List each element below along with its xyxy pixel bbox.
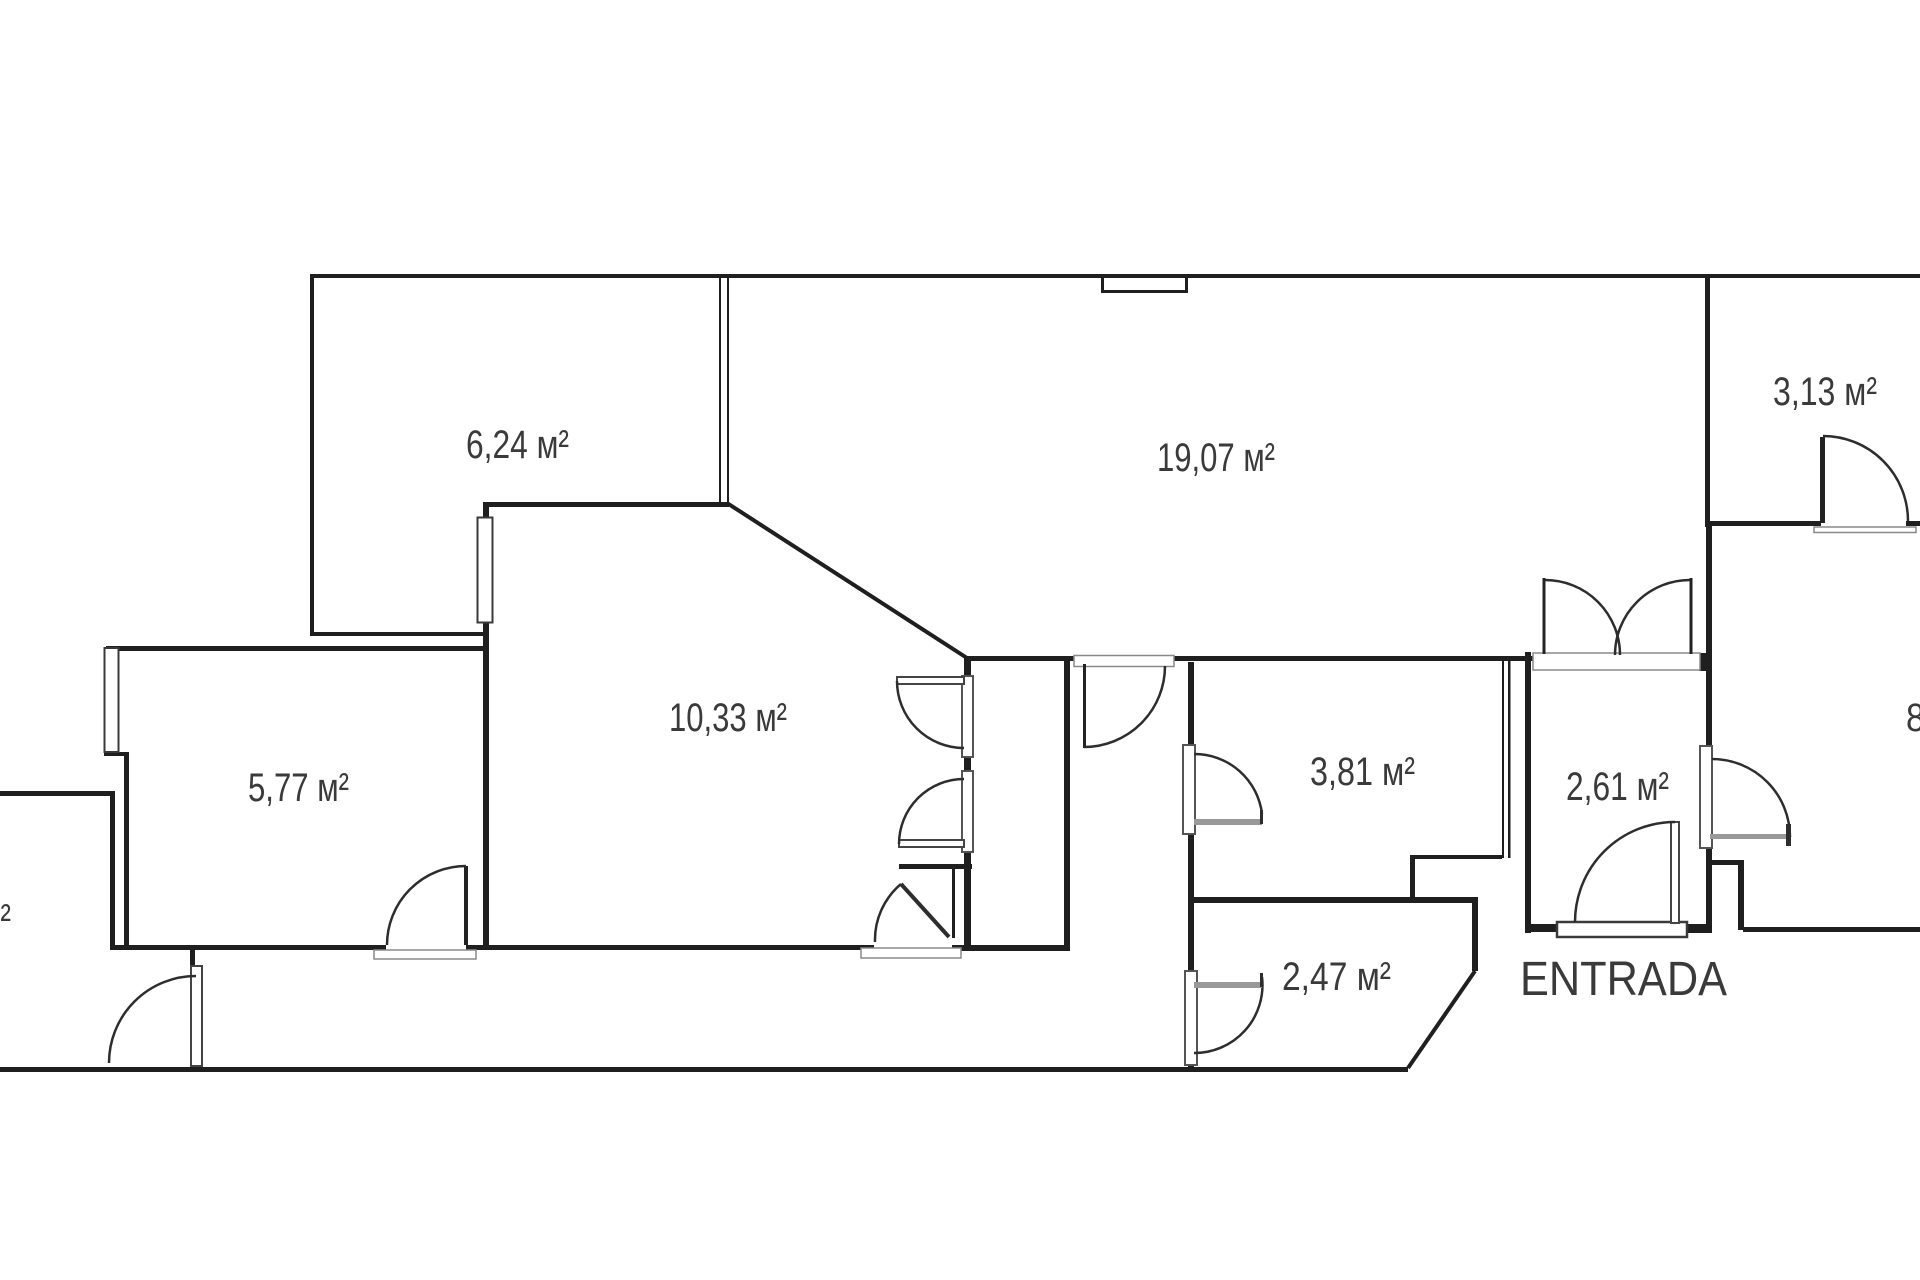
- svg-text:5,77 м²: 5,77 м²: [248, 766, 349, 810]
- svg-text:3,81 м²: 3,81 м²: [1310, 750, 1415, 794]
- svg-text:ENTRADA: ENTRADA: [1520, 953, 1727, 1006]
- svg-text:19,07 м²: 19,07 м²: [1157, 436, 1275, 480]
- svg-text:5,16 м²: 5,16 м²: [0, 897, 11, 941]
- svg-text:3,13 м²: 3,13 м²: [1773, 370, 1877, 414]
- svg-text:10,33 м²: 10,33 м²: [669, 696, 787, 740]
- svg-text:6,24 м²: 6,24 м²: [466, 423, 569, 467]
- svg-text:2,47 м²: 2,47 м²: [1282, 955, 1391, 999]
- svg-text:2,61 м²: 2,61 м²: [1566, 765, 1669, 809]
- svg-text:8,25 м²: 8,25 м²: [1906, 696, 1920, 740]
